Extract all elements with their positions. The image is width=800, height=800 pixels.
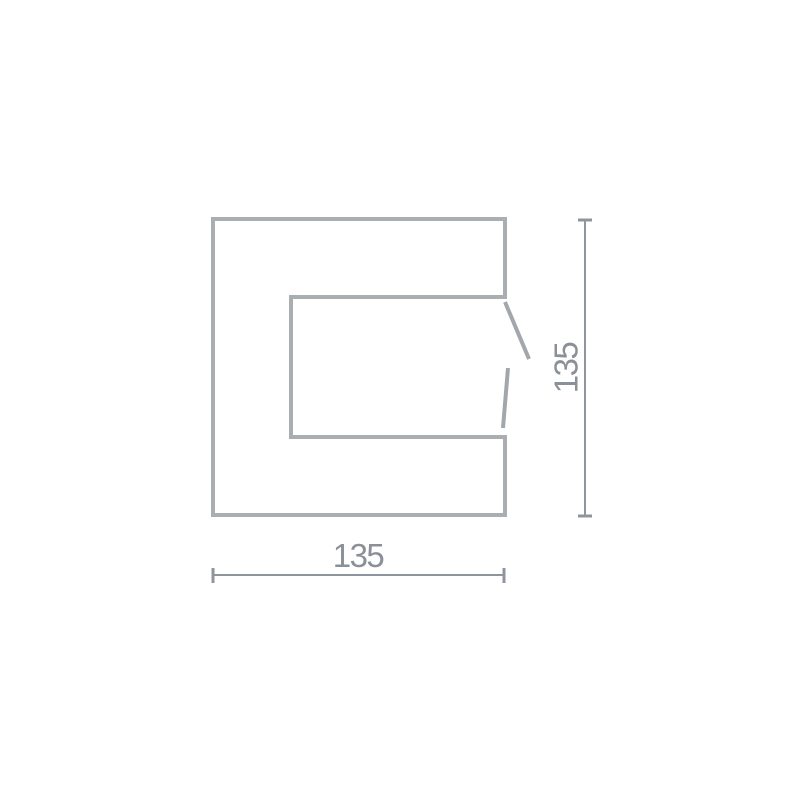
- break-mark-upper-icon: [505, 302, 529, 359]
- width-dimension-label: 135: [333, 537, 384, 574]
- dimension-diagram: 135 135: [0, 0, 800, 800]
- width-dimension: 135: [213, 537, 504, 583]
- height-dimension: 135: [548, 220, 593, 516]
- height-dimension-label: 135: [548, 343, 585, 394]
- profile-outline: [213, 219, 505, 515]
- break-mark-lower-icon: [503, 368, 508, 428]
- canvas: 135 135: [0, 0, 800, 800]
